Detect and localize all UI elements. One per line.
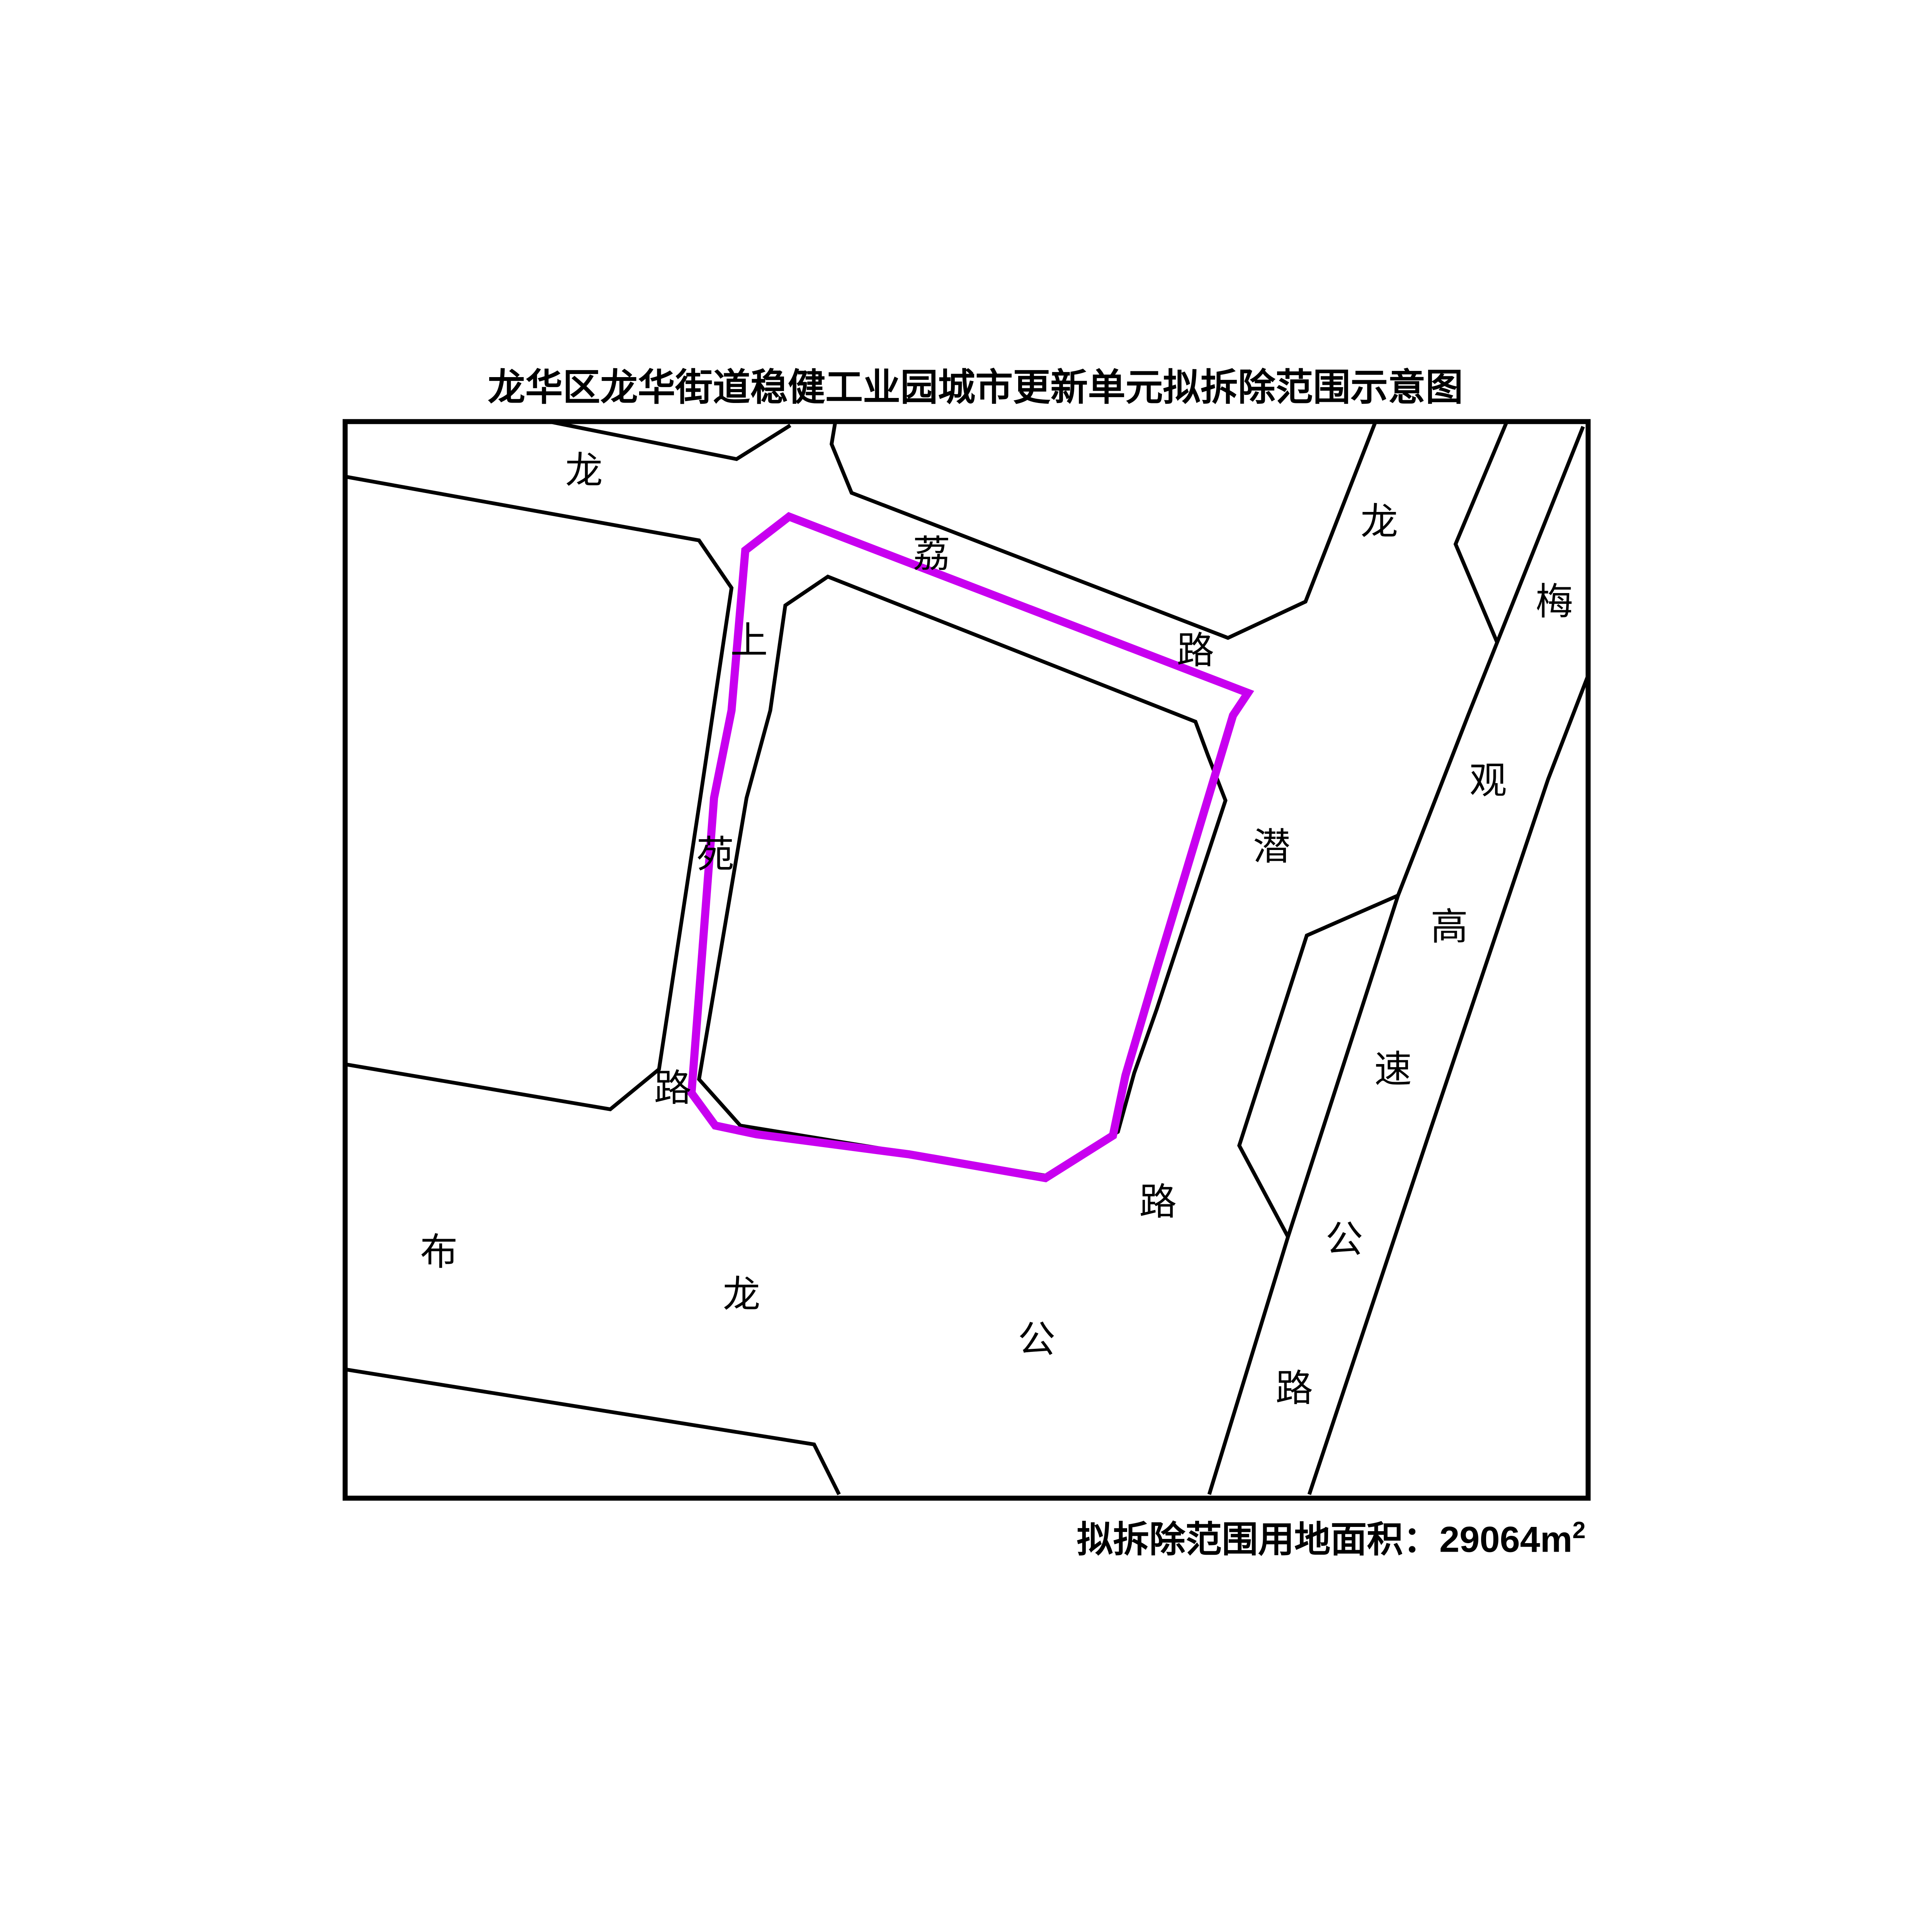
road-label: 路 xyxy=(1276,1367,1313,1409)
road-label: 龙 xyxy=(565,449,603,491)
area-unit-exponent: 2 xyxy=(1572,1517,1585,1544)
road-shangyuan-west-edge xyxy=(345,477,731,1110)
expressway-west-edge xyxy=(1209,427,1583,1494)
area-unit: m xyxy=(1540,1519,1572,1560)
road-label: 潜 xyxy=(1253,826,1291,868)
road-label: 观 xyxy=(1469,759,1507,801)
road-label: 梅 xyxy=(1536,581,1573,623)
map-frame: 龙荔路上苑路潜路龙梅观高速公路布龙公 xyxy=(345,422,1588,1498)
corridor-east-edge xyxy=(1456,422,1507,642)
road-label: 路 xyxy=(1139,1181,1177,1223)
page-title: 龙华区龙华街道稳健工业园城市更新单元拟拆除范围示意图 xyxy=(488,366,1463,408)
area-label: 拟拆除范围用地面积： xyxy=(1077,1519,1439,1560)
road-label: 高 xyxy=(1430,906,1468,948)
expressway-east-edge xyxy=(1309,675,1588,1494)
road-label: 速 xyxy=(1374,1048,1412,1090)
road-label: 苑 xyxy=(697,833,734,875)
road-label: 上 xyxy=(730,619,768,661)
demolition-scope-boundary xyxy=(692,517,1248,1178)
road-label: 路 xyxy=(654,1067,692,1109)
road-longli-north-edge xyxy=(832,422,1376,638)
road-label: 路 xyxy=(1177,629,1214,672)
road-label: 龙 xyxy=(1361,501,1398,543)
area-statistic: 拟拆除范围用地面积：29064m2 xyxy=(1077,1517,1586,1560)
industrial-park-parcel-outline xyxy=(699,576,1225,1175)
road-bulong-south-edge xyxy=(345,1369,839,1494)
road-label: 布 xyxy=(420,1231,457,1273)
area-value: 29064 xyxy=(1439,1519,1540,1560)
demolition-map: 龙华区龙华街道稳健工业园城市更新单元拟拆除范围示意图 龙荔路上苑路潜路龙梅观高速… xyxy=(0,0,1932,1916)
page: 龙华区龙华街道稳健工业园城市更新单元拟拆除范围示意图 龙荔路上苑路潜路龙梅观高速… xyxy=(0,0,1932,1916)
road-label: 龙 xyxy=(723,1273,760,1316)
road-label: 公 xyxy=(1325,1218,1363,1260)
road-label: 公 xyxy=(1018,1318,1055,1360)
road-label: 荔 xyxy=(913,533,950,575)
